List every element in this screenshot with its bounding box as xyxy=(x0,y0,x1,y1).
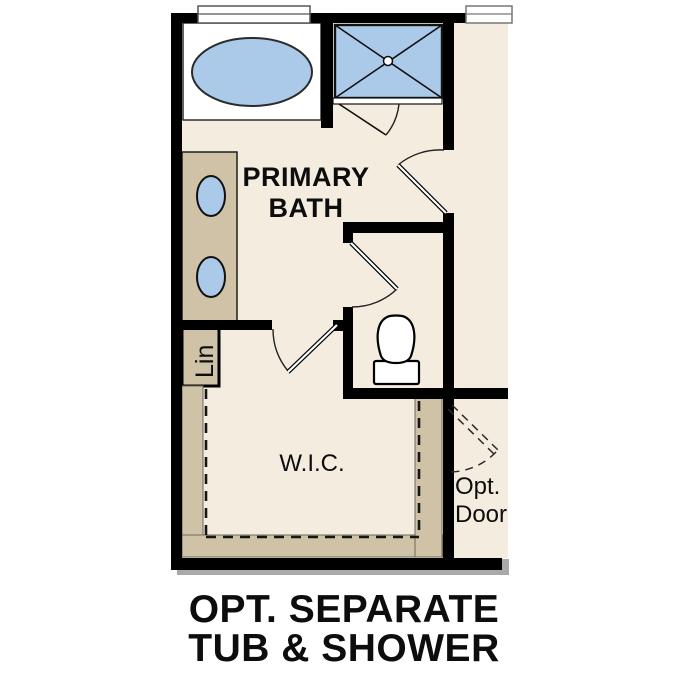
caption-line1: OPT. SEPARATE xyxy=(189,588,500,631)
wall-bottom xyxy=(171,558,502,570)
wall-toilet-room-left xyxy=(343,307,353,398)
shower-glass-panel xyxy=(333,98,442,104)
toilet-bowl xyxy=(378,316,415,364)
window-1 xyxy=(198,6,310,23)
wall-right-lower xyxy=(443,213,454,562)
wall-left xyxy=(171,13,182,570)
sink-2 xyxy=(197,257,225,297)
wall-toilet-room-top xyxy=(343,222,443,233)
wall-tub-shower-partition xyxy=(321,23,333,128)
toilet-tank xyxy=(374,361,419,384)
caption-line2: TUB & SHOWER xyxy=(188,627,500,670)
wic-label: W.I.C. xyxy=(279,450,344,477)
primary-bath-label-line2: BATH xyxy=(269,193,344,223)
opt-door-label-line1: Opt. xyxy=(455,473,500,500)
floorplan-page: PRIMARY BATH Lin W.I.C. Opt. Door OPT. S… xyxy=(0,0,687,687)
wall-right-upper xyxy=(443,13,454,150)
sink-1 xyxy=(197,176,225,216)
wall-shadow-right xyxy=(502,559,509,575)
bathtub xyxy=(192,38,312,106)
linen-label: Lin xyxy=(191,345,219,378)
wall-shadow-bottom xyxy=(177,570,509,575)
opt-door-label-line2: Door xyxy=(455,501,507,528)
wic-shelf-left xyxy=(182,386,203,557)
primary-bath-label-line1: PRIMARY xyxy=(242,162,369,192)
wall-toilet-door-jamb xyxy=(343,222,353,243)
floorplan-drawing: PRIMARY BATH Lin W.I.C. Opt. Door OPT. S… xyxy=(0,0,687,687)
shower-drain-icon xyxy=(384,57,393,66)
wall-toilet-room-bottom xyxy=(343,388,508,399)
wall-bath-wic-divider xyxy=(171,320,272,330)
window-2 xyxy=(466,6,512,23)
